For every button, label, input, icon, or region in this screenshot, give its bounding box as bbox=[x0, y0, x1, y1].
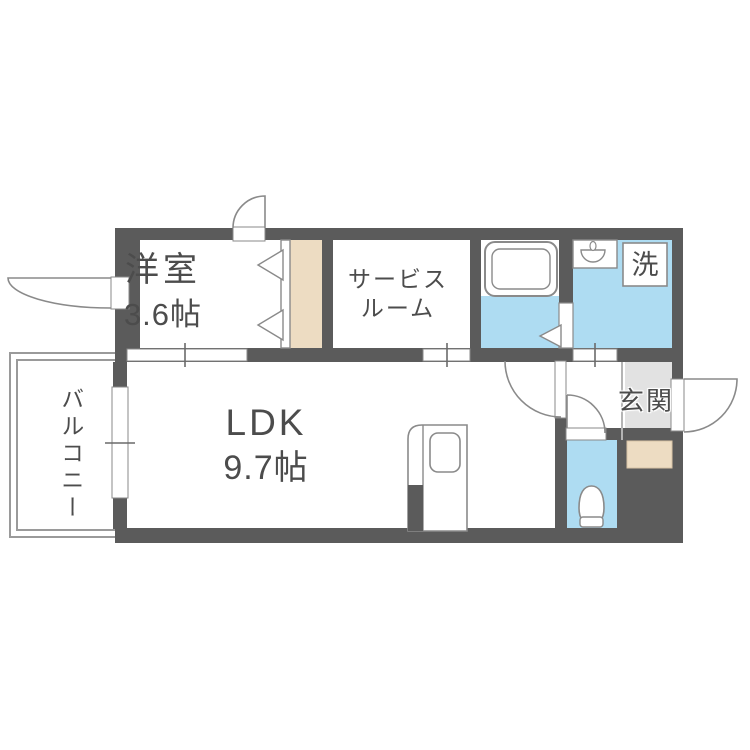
closet-folding-door-icon bbox=[258, 240, 290, 348]
shoe-cabinet bbox=[627, 441, 672, 468]
ldk-door-leaf bbox=[555, 361, 566, 418]
kitchen-wall-stub bbox=[408, 485, 423, 531]
wall-top bbox=[115, 228, 683, 240]
toilet-door-leaf bbox=[566, 428, 606, 440]
ldk-size: 9.7帖 bbox=[196, 447, 336, 490]
kitchen-sink-icon bbox=[430, 433, 460, 472]
door-swing-icon bbox=[505, 361, 561, 417]
bathtub-icon bbox=[485, 242, 557, 296]
service-room-label-line1: サービス bbox=[328, 265, 468, 294]
western-room-size: 3.6帖 bbox=[93, 296, 233, 335]
sink-icon bbox=[573, 240, 617, 268]
toilet-icon bbox=[579, 486, 604, 527]
wall-bottom bbox=[115, 528, 683, 543]
door-swing-icon bbox=[684, 379, 737, 432]
balcony-label: バルコニー bbox=[56, 374, 85, 534]
kitchen-counter-icon bbox=[408, 425, 467, 531]
ldk-label: LDK bbox=[196, 400, 336, 446]
entrance-label: 玄関 bbox=[614, 385, 678, 418]
western-room-ldk-opening bbox=[127, 349, 247, 361]
western-room-door-opening bbox=[233, 227, 265, 241]
door-swing-icon bbox=[233, 196, 265, 228]
door-swing-icon bbox=[567, 395, 605, 433]
wall-service-bath bbox=[470, 240, 481, 348]
floorplan-drawing bbox=[0, 0, 750, 750]
laundry-label: 洗 bbox=[623, 249, 667, 283]
western-room-label: 洋室 bbox=[93, 249, 233, 292]
wall-right-upper bbox=[672, 228, 683, 379]
service-room-label-line2: ルーム bbox=[328, 294, 468, 323]
closet-floor bbox=[290, 240, 322, 348]
floorplan: 洋室 3.6帖 サービス ルーム LDK 9.7帖 バルコニー 玄関 洗 bbox=[0, 0, 750, 750]
